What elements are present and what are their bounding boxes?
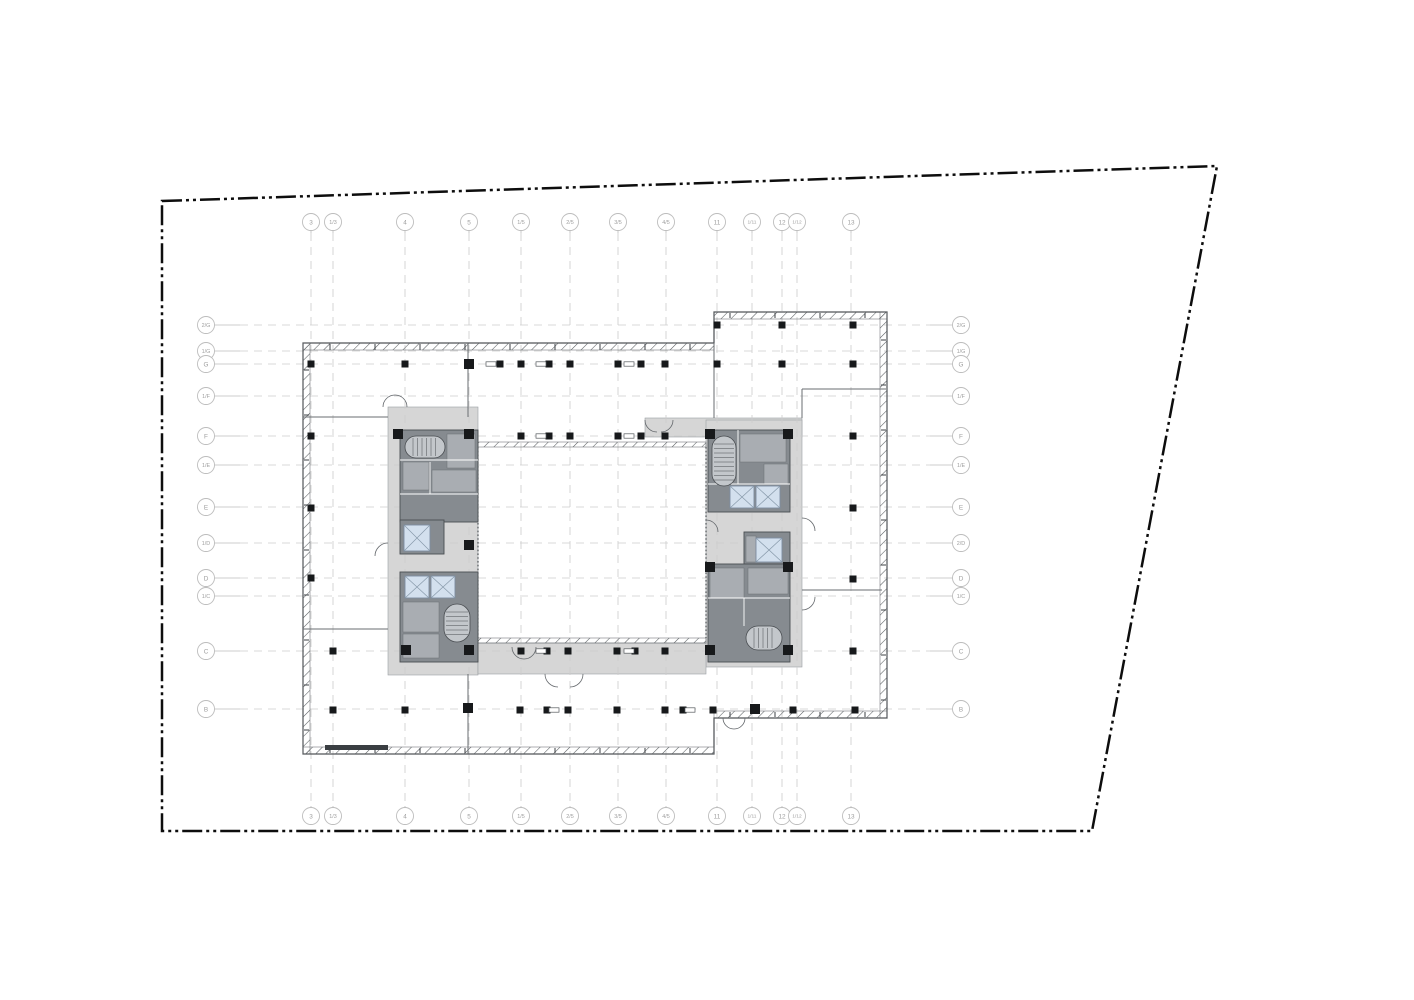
grid-bubble-label: 1/3 bbox=[329, 814, 337, 820]
grid-bubble-bottom-1/5: 1/5 bbox=[513, 808, 530, 825]
room-patch bbox=[432, 470, 476, 492]
grid-bubble-bottom-4: 4 bbox=[397, 808, 414, 825]
grid-bubble-label: G bbox=[959, 361, 964, 368]
column-marker bbox=[401, 645, 411, 655]
grid-bubble-bottom-13: 13 bbox=[843, 808, 860, 825]
room-patch bbox=[403, 462, 429, 490]
column-marker bbox=[308, 433, 315, 440]
grid-bubble-bottom-5: 5 bbox=[461, 808, 478, 825]
grid-bubble-label: 1/G bbox=[202, 349, 211, 355]
column-marker bbox=[614, 648, 621, 655]
room-patch bbox=[710, 568, 744, 598]
grid-bubble-label: 13 bbox=[847, 219, 855, 226]
column-marker bbox=[662, 433, 669, 440]
grid-bubble-label: F bbox=[204, 433, 208, 440]
elevator-shaft-icon bbox=[431, 576, 455, 598]
column-marker bbox=[497, 361, 504, 368]
grid-bubble-top-11: 11 bbox=[709, 214, 726, 231]
grid-bubble-right-1/E: 1/E bbox=[953, 457, 970, 474]
column-marker bbox=[464, 359, 474, 369]
column-marker bbox=[565, 707, 572, 714]
grid-bubble-label: 11 bbox=[714, 219, 721, 226]
grid-bubble-left-1/C: 1/C bbox=[198, 588, 215, 605]
grid-bubble-right-C: C bbox=[953, 643, 970, 660]
grid-bubble-label: 5 bbox=[467, 813, 471, 820]
column-marker bbox=[850, 361, 857, 368]
column-marker bbox=[852, 707, 859, 714]
grid-bubble-label: 1/C bbox=[957, 594, 965, 600]
grid-bubble-left-1/F: 1/F bbox=[198, 388, 215, 405]
grid-bubble-label: 2/D bbox=[957, 541, 965, 547]
wall-stub-marker bbox=[624, 362, 634, 366]
column-marker bbox=[464, 645, 474, 655]
grid-bubble-label: 1/11 bbox=[748, 814, 757, 820]
grid-bubble-left-C: C bbox=[198, 643, 215, 660]
column-marker bbox=[662, 361, 669, 368]
column-marker bbox=[546, 433, 553, 440]
grid-bubble-label: 1/5 bbox=[517, 814, 525, 820]
elevator-shaft-icon bbox=[756, 538, 782, 562]
grid-bubble-top-1/12: 1/12 bbox=[789, 214, 806, 231]
column-marker bbox=[308, 575, 315, 582]
grid-bubble-label: 12 bbox=[778, 219, 786, 226]
column-marker bbox=[705, 429, 715, 439]
grid-bubble-top-13: 13 bbox=[843, 214, 860, 231]
grid-bubble-label: F bbox=[959, 433, 963, 440]
wall-stub-marker bbox=[536, 649, 546, 653]
grid-bubble-label: 2/5 bbox=[566, 220, 574, 226]
grid-bubble-label: D bbox=[204, 575, 209, 582]
column-marker bbox=[662, 707, 669, 714]
grid-bubble-bottom-2/5: 2/5 bbox=[562, 808, 579, 825]
grid-bubble-label: 1/D bbox=[202, 541, 210, 547]
grid-bubble-bottom-1/12: 1/12 bbox=[789, 808, 806, 825]
grid-bubble-right-E: E bbox=[953, 499, 970, 516]
grid-bubble-bottom-11: 11 bbox=[709, 808, 726, 825]
elevator-shaft-icon bbox=[404, 525, 430, 551]
courtyard-wall-north bbox=[478, 442, 706, 447]
column-marker bbox=[783, 645, 793, 655]
grid-bubble-top-4: 4 bbox=[397, 214, 414, 231]
grid-bubble-label: D bbox=[959, 575, 964, 582]
column-marker bbox=[330, 648, 337, 655]
grid-bubble-top-1/5: 1/5 bbox=[513, 214, 530, 231]
grid-bubble-top-3/5: 3/5 bbox=[610, 214, 627, 231]
wall-stub-marker bbox=[624, 649, 634, 653]
grid-bubble-top-2/5: 2/5 bbox=[562, 214, 579, 231]
grid-bubble-label: 3/5 bbox=[614, 814, 622, 820]
grid-bubble-label: 3 bbox=[309, 813, 313, 820]
grid-bubble-label: 1/E bbox=[202, 463, 210, 469]
grid-bubble-label: C bbox=[204, 648, 209, 655]
column-marker bbox=[662, 648, 669, 655]
door-arc bbox=[723, 718, 734, 729]
door-arc bbox=[734, 718, 745, 729]
wall-hatch-band bbox=[714, 711, 887, 718]
column-marker bbox=[850, 576, 857, 583]
grid-bubble-label: 1/3 bbox=[329, 220, 337, 226]
grid-bubble-bottom-12: 12 bbox=[774, 808, 791, 825]
column-marker bbox=[463, 703, 473, 713]
room-patch bbox=[740, 434, 786, 462]
column-marker bbox=[567, 433, 574, 440]
grid-bubble-bottom-4/5: 4/5 bbox=[658, 808, 675, 825]
wall-stub-marker bbox=[685, 708, 695, 712]
column-marker bbox=[783, 562, 793, 572]
column-marker bbox=[546, 361, 553, 368]
grid-bubble-bottom-3: 3 bbox=[303, 808, 320, 825]
column-marker bbox=[705, 562, 715, 572]
grid-bubble-label: B bbox=[959, 706, 963, 713]
stair-icon bbox=[712, 436, 736, 486]
stair-icon bbox=[444, 604, 470, 642]
wall-hatch-band bbox=[714, 312, 887, 319]
column-marker bbox=[567, 361, 574, 368]
wall-stub-marker bbox=[536, 362, 546, 366]
column-marker bbox=[402, 707, 409, 714]
column-marker bbox=[615, 361, 622, 368]
grid-bubble-right-F: F bbox=[953, 428, 970, 445]
grid-bubble-right-1/F: 1/F bbox=[953, 388, 970, 405]
grid-bubble-label: C bbox=[959, 648, 964, 655]
grid-bubble-top-5: 5 bbox=[461, 214, 478, 231]
grid-bubble-label: 13 bbox=[847, 813, 855, 820]
wall-stub-marker bbox=[486, 362, 496, 366]
column-marker bbox=[714, 322, 721, 329]
column-marker bbox=[790, 707, 797, 714]
grid-bubble-label: 4/5 bbox=[662, 814, 670, 820]
grid-bubble-label: 12 bbox=[778, 813, 786, 820]
column-marker bbox=[402, 361, 409, 368]
column-marker bbox=[518, 648, 525, 655]
wall-hatch-band bbox=[303, 343, 310, 754]
column-marker bbox=[850, 433, 857, 440]
grid-bubble-top-1/3: 1/3 bbox=[325, 214, 342, 231]
grid-bubble-bottom-1/3: 1/3 bbox=[325, 808, 342, 825]
grid-bubble-right-G: G bbox=[953, 356, 970, 373]
column-marker bbox=[783, 429, 793, 439]
grid-bubble-left-B: B bbox=[198, 701, 215, 718]
wall-stub-marker bbox=[549, 708, 559, 712]
column-marker bbox=[308, 505, 315, 512]
column-marker bbox=[850, 648, 857, 655]
grid-bubble-left-2/G: 2/G bbox=[198, 317, 215, 334]
grid-bubble-left-D: D bbox=[198, 570, 215, 587]
column-marker bbox=[710, 707, 717, 714]
grid-bubble-label: 3/5 bbox=[614, 220, 622, 226]
grid-bubble-right-2/D: 2/D bbox=[953, 535, 970, 552]
column-marker bbox=[779, 361, 786, 368]
floor-plan-canvas: 331/31/344551/51/52/52/53/53/54/54/51111… bbox=[0, 0, 1414, 1000]
grid-bubble-label: G bbox=[204, 361, 209, 368]
elevator-shaft-icon bbox=[730, 486, 754, 508]
column-marker bbox=[638, 433, 645, 440]
grid-bubble-right-D: D bbox=[953, 570, 970, 587]
grid-bubble-top-12: 12 bbox=[774, 214, 791, 231]
grid-bubble-right-B: B bbox=[953, 701, 970, 718]
column-marker bbox=[850, 505, 857, 512]
stair-icon bbox=[405, 436, 445, 458]
grid-bubble-label: 5 bbox=[467, 219, 471, 226]
room-patch bbox=[403, 602, 439, 632]
grid-bubble-top-3: 3 bbox=[303, 214, 320, 231]
grid-bubble-label: E bbox=[959, 504, 963, 511]
grid-bubble-right-2/G: 2/G bbox=[953, 317, 970, 334]
grid-bubble-label: 11 bbox=[714, 813, 721, 820]
room-patch bbox=[764, 464, 788, 484]
grid-bubble-label: 1/5 bbox=[517, 220, 525, 226]
entrance-canopy-bar bbox=[325, 745, 388, 750]
grid-bubble-label: 1/C bbox=[202, 594, 210, 600]
grid-bubble-left-F: F bbox=[198, 428, 215, 445]
grid-bubble-label: 3 bbox=[309, 219, 313, 226]
wall-hatch-band bbox=[303, 343, 714, 350]
grid-bubble-label: 1/F bbox=[957, 394, 965, 400]
column-marker bbox=[638, 361, 645, 368]
stair-icon bbox=[746, 626, 782, 650]
wall-stub-marker bbox=[536, 434, 546, 438]
grid-bubble-bottom-1/11: 1/11 bbox=[744, 808, 761, 825]
column-marker bbox=[565, 648, 572, 655]
grid-bubble-left-E: E bbox=[198, 499, 215, 516]
column-marker bbox=[308, 361, 315, 368]
column-marker bbox=[518, 433, 525, 440]
grid-bubble-label: 4 bbox=[403, 813, 407, 820]
column-marker bbox=[614, 707, 621, 714]
grid-bubble-top-1/11: 1/11 bbox=[744, 214, 761, 231]
grid-bubble-right-1/C: 1/C bbox=[953, 588, 970, 605]
column-marker bbox=[517, 707, 524, 714]
column-marker bbox=[330, 707, 337, 714]
building-footprint bbox=[303, 312, 887, 754]
grid-bubble-label: 1/12 bbox=[792, 814, 802, 820]
grid-bubble-label: 2/G bbox=[957, 323, 966, 329]
room-patch bbox=[447, 434, 475, 468]
wall-stub-marker bbox=[624, 434, 634, 438]
grid-bubble-label: 1/E bbox=[957, 463, 965, 469]
column-marker bbox=[850, 322, 857, 329]
grid-bubble-left-1/E: 1/E bbox=[198, 457, 215, 474]
grid-bubble-label: 2/G bbox=[202, 323, 211, 329]
room-patch bbox=[748, 568, 788, 594]
column-marker bbox=[705, 645, 715, 655]
grid-bubble-left-G: G bbox=[198, 356, 215, 373]
grid-bubble-label: E bbox=[204, 504, 208, 511]
elevator-shaft-icon bbox=[756, 486, 780, 508]
grid-bubble-label: 4 bbox=[403, 219, 407, 226]
grid-bubble-label: B bbox=[204, 706, 208, 713]
grid-bubble-label: 1/12 bbox=[792, 220, 802, 226]
courtyard-wall-south bbox=[478, 638, 706, 643]
column-marker bbox=[779, 322, 786, 329]
column-marker bbox=[750, 704, 760, 714]
grid-bubble-top-4/5: 4/5 bbox=[658, 214, 675, 231]
room-patch bbox=[746, 536, 756, 562]
column-marker bbox=[464, 429, 474, 439]
column-marker bbox=[518, 361, 525, 368]
grid-bubble-bottom-3/5: 3/5 bbox=[610, 808, 627, 825]
grid-bubble-label: 1/G bbox=[957, 349, 966, 355]
column-marker bbox=[615, 433, 622, 440]
column-marker bbox=[464, 540, 474, 550]
grid-bubble-label: 1/11 bbox=[748, 220, 757, 226]
grid-bubble-left-1/D: 1/D bbox=[198, 535, 215, 552]
grid-bubble-label: 4/5 bbox=[662, 220, 670, 226]
grid-bubble-label: 1/F bbox=[202, 394, 210, 400]
grid-bubble-label: 2/5 bbox=[566, 814, 574, 820]
column-marker bbox=[714, 361, 721, 368]
wall-hatch-band bbox=[880, 312, 887, 718]
column-marker bbox=[393, 429, 403, 439]
elevator-shaft-icon bbox=[405, 576, 429, 598]
